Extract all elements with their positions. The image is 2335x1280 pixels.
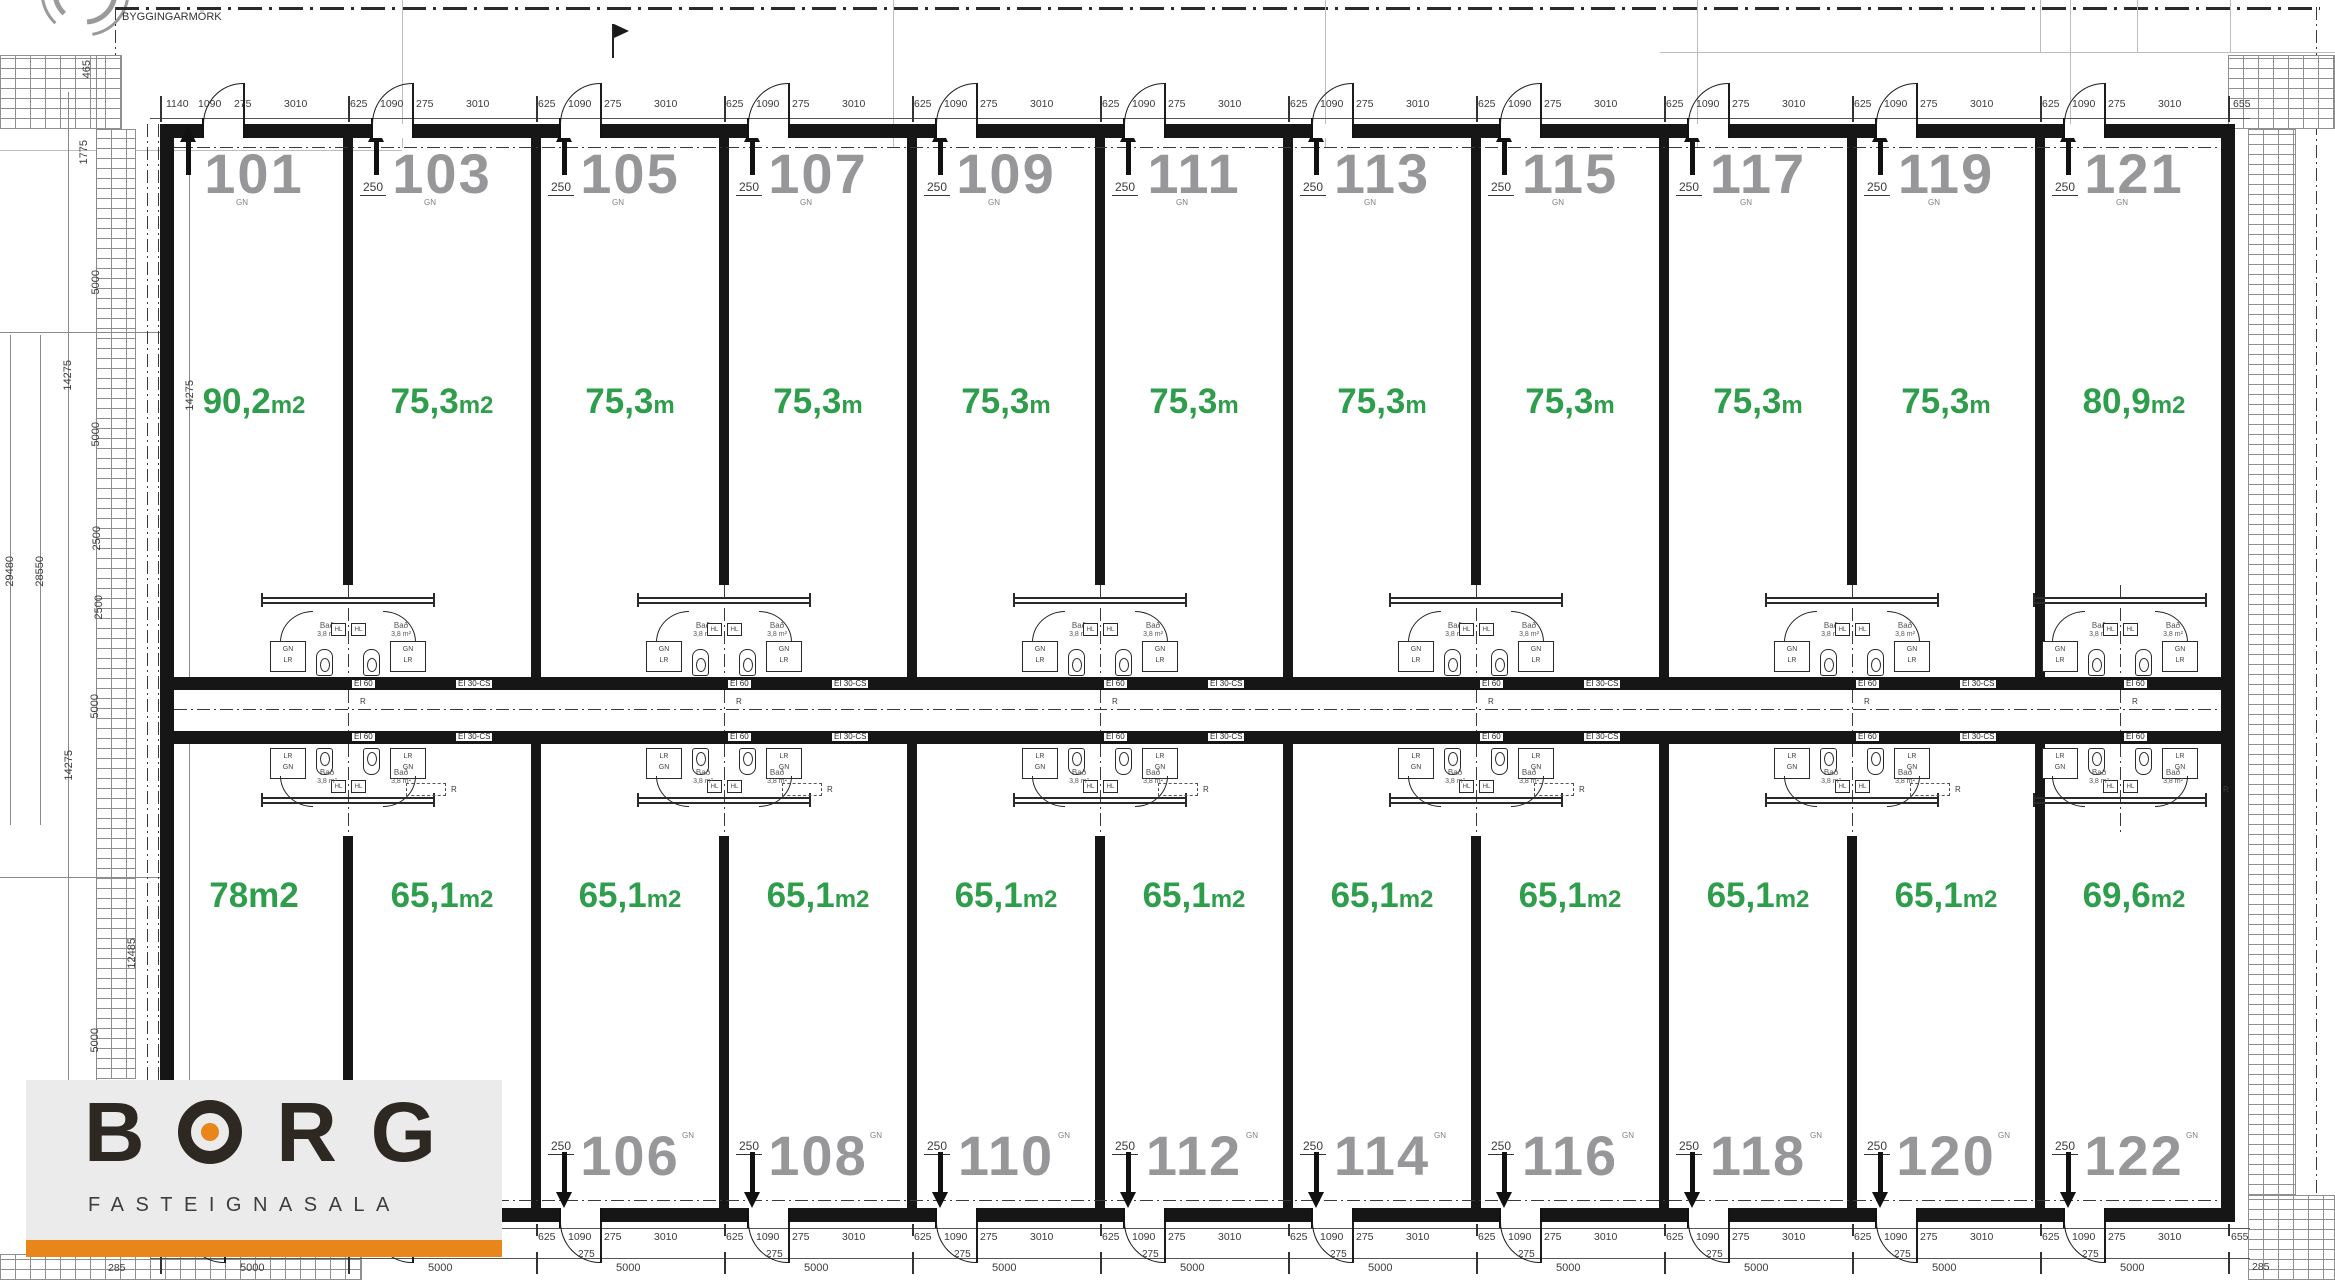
r-label: R (1112, 698, 1118, 706)
door-dim-label: 275 (1518, 1250, 1535, 1260)
bath-name: Bað (688, 768, 718, 778)
unit-gn-label: GN (1622, 1132, 1634, 1140)
dim-label: 275 (980, 99, 998, 110)
dim-label: 625 (1102, 99, 1120, 110)
toilet-bowl (2092, 752, 2102, 766)
insulation-line (147, 124, 148, 1222)
fixture-box: HL (331, 623, 346, 636)
closet-label: LR (1023, 752, 1057, 763)
door-leaf (412, 83, 414, 124)
closet-box: LRGN (646, 748, 682, 779)
r-label: R (736, 698, 742, 706)
building-wall-left (160, 124, 174, 1222)
closet-label: LR (1399, 656, 1433, 667)
unit-number: 101 (186, 146, 322, 202)
dim-label: 275 (980, 1232, 998, 1243)
corridor-floor (174, 690, 2221, 731)
unit-width-dim: 5000 (1932, 1263, 1956, 1274)
dim-label: 3010 (1218, 99, 1241, 110)
dim-label: 625 (1854, 1232, 1872, 1243)
dim-label: 3010 (1970, 1232, 1993, 1243)
closet-label: LR (1519, 752, 1553, 763)
door-swing-arc (748, 83, 788, 124)
unit-area-unit: m2 (647, 886, 682, 913)
unit-gn-label: GN (1058, 1132, 1070, 1140)
door-dim-label: 275 (578, 1250, 595, 1260)
door-leaf (1728, 1222, 1730, 1263)
wall-thickness-dim: 250 (1112, 181, 1138, 196)
wardrobe-rail (1767, 597, 1937, 604)
door-leaf (600, 83, 602, 124)
closet-label: LR (767, 656, 801, 667)
wardrobe-rail (1391, 797, 1561, 804)
pod-boundary-line (348, 744, 349, 836)
unit-area-value: 65,1 (391, 876, 459, 915)
unit-area-value: 69,6 (2083, 876, 2151, 915)
door-swing-arc (1500, 83, 1540, 124)
r-label: R (2132, 698, 2138, 706)
door-opening (1500, 124, 1541, 138)
unit-area: 75,3m2 (356, 384, 528, 419)
unit-area-value: 75,3 (585, 382, 653, 421)
grid-line-horizontal (1660, 52, 2335, 53)
toilet-bowl (1824, 752, 1834, 766)
toilet-bowl (320, 658, 330, 672)
closet-box: LRGN (1398, 748, 1434, 779)
unit-area-unit: m (1781, 392, 1802, 419)
unit-area-unit: m2 (835, 886, 870, 913)
door-opening (1876, 1208, 1917, 1222)
closet-box: GNLR (1142, 641, 1178, 672)
fixture-box: HL (727, 623, 742, 636)
unit-number: 117 (1690, 146, 1826, 202)
closet-label: GN (2043, 645, 2077, 656)
pod-boundary-line (2120, 744, 2121, 836)
unit-area: 65,1m2 (1484, 878, 1656, 913)
unit-area-unit: m2 (1963, 886, 1998, 913)
closet-label: GN (2163, 645, 2197, 656)
dim-label: 275 (2108, 99, 2126, 110)
closet-label: GN (2043, 763, 2077, 774)
unit-area: 65,1m2 (356, 878, 528, 913)
closet-box: LRGN (1774, 748, 1810, 779)
unit-area: 75,3m (1296, 384, 1468, 419)
r-label: R (1579, 786, 1585, 794)
fire-rating-label: EI 60 (352, 680, 375, 688)
door-opening (372, 124, 413, 138)
door-opening (1500, 1208, 1541, 1222)
unit-area: 90,2m2 (168, 384, 340, 419)
dim-label: 625 (726, 1232, 744, 1243)
fire-rating-label: EI 60 (1480, 733, 1503, 741)
dim-tick (724, 1252, 726, 1274)
closet-box: LRGN (270, 748, 306, 779)
closet-box: GNLR (1894, 641, 1930, 672)
door-swing-arc (280, 611, 313, 642)
toilet-icon (1867, 649, 1884, 676)
closet-label: LR (391, 656, 425, 667)
toilet-icon (739, 649, 756, 676)
unit-area-unit: m2 (271, 392, 306, 419)
toilet-bowl (1871, 658, 1881, 672)
entry-arrow-bar (1690, 141, 1695, 175)
dim-label: 3010 (1970, 99, 1993, 110)
entry-arrow-bar (1878, 141, 1883, 175)
closet-box: GNLR (1398, 641, 1434, 672)
rail-tick (2205, 793, 2207, 807)
door-leaf (1540, 1222, 1542, 1263)
toilet-bowl (696, 752, 706, 766)
fixture-box: HL (2103, 623, 2118, 636)
unit-width-dim: 5000 (428, 1263, 452, 1274)
entry-arrow-bar (562, 141, 567, 175)
fixture-box: HL (351, 780, 366, 793)
unit-area: 78m2 (168, 878, 340, 913)
dim-label: 275 (792, 99, 810, 110)
dim-label: 625 (914, 99, 932, 110)
unit-area-unit: m2 (1587, 886, 1622, 913)
closet-label: LR (1519, 656, 1553, 667)
wall-thickness-dim: 250 (736, 181, 762, 196)
bath-name: Bað (1514, 621, 1544, 631)
unit-number: 120 (1878, 1128, 2014, 1184)
dim-tick (1288, 1252, 1290, 1274)
grid-line-vertical (2040, 0, 2041, 52)
bath-area: 3,8 m² (1440, 778, 1470, 787)
toilet-icon (1491, 748, 1508, 775)
door-opening (1124, 124, 1165, 138)
closet-label: GN (1519, 645, 1553, 656)
left-margin-dim: 28550 (35, 556, 46, 587)
fire-rating-label: EI 60 (2124, 680, 2147, 688)
dim-label: 275 (792, 1232, 810, 1243)
rail-tick (1389, 593, 1391, 607)
unit-area: 75,3m (732, 384, 904, 419)
door-swing-arc (372, 83, 412, 124)
door-opening (560, 124, 601, 138)
door-leaf (1540, 83, 1542, 124)
entry-arrow-bar (1502, 1152, 1507, 1192)
unit-number: 118 (1690, 1128, 1826, 1184)
wardrobe-rail (2035, 797, 2205, 804)
door-leaf (1164, 1222, 1166, 1263)
bath-name: Bað (2158, 621, 2188, 631)
closet-label: LR (2163, 752, 2197, 763)
toilet-icon (1444, 649, 1461, 676)
rail-tick (637, 793, 639, 807)
dim-label: 3010 (466, 99, 489, 110)
fire-rating-label: EI 60 (1856, 680, 1879, 688)
bath-label: Bað3,8 m² (2158, 621, 2188, 640)
unit-width-dim: 5000 (1180, 1263, 1204, 1274)
unit-area-value: 80,9 (2083, 382, 2151, 421)
dim-tick (2040, 1252, 2042, 1274)
wall-thickness-dim: 250 (1300, 181, 1326, 196)
bath-area: 3,8 m² (386, 631, 416, 640)
dim-label: 275 (2108, 1232, 2126, 1243)
dim-label: 1140 (166, 99, 189, 110)
unit-area: 65,1m2 (1108, 878, 1280, 913)
borg-logo-accent-bar (26, 1240, 502, 1257)
unit-number: 116 (1502, 1128, 1638, 1184)
left-margin-dim: 2500 (94, 595, 105, 619)
entry-arrow-bar (1878, 1152, 1883, 1192)
unit-number: 115 (1502, 146, 1638, 202)
dim-label: 3010 (842, 99, 865, 110)
fire-rating-label: EI 60 (1104, 680, 1127, 688)
door-swing-arc (560, 83, 600, 124)
toilet-bowl (367, 752, 377, 766)
unit-area-value: 65,1 (767, 876, 835, 915)
dim-label: 1090 (2072, 1232, 2095, 1243)
fire-rating-label: EI 30-CS (1208, 733, 1244, 741)
unit-area-value: 78 (209, 876, 248, 915)
fixture-box: HL (1083, 623, 1098, 636)
fixture-box: HL (1459, 623, 1474, 636)
dim-label: 625 (914, 1232, 932, 1243)
unit-number: 109 (938, 146, 1074, 202)
door-leaf (788, 83, 790, 124)
pod-boundary-line (1476, 690, 1477, 731)
unit-gn-label: GN (1740, 199, 1752, 207)
closet-label: LR (1775, 656, 1809, 667)
closet-box: GNLR (1774, 641, 1810, 672)
unit-area: 75,3m (920, 384, 1092, 419)
door-swing-arc (203, 83, 243, 124)
boundary-line-right (2316, 7, 2317, 1280)
unit-area: 65,1m2 (920, 878, 1092, 913)
grid-line-vertical (2137, 0, 2138, 52)
closet-label: LR (2043, 656, 2077, 667)
left-margin-dim: 5000 (90, 1028, 101, 1052)
future-closet-dashed (1534, 783, 1574, 796)
toilet-icon (739, 748, 756, 775)
dim-label: 1090 (1884, 1232, 1907, 1243)
rail-tick (2033, 793, 2035, 807)
dim-chain-line (150, 1258, 2250, 1259)
wardrobe-rail (1015, 797, 1185, 804)
dim-label: 275 (604, 99, 622, 110)
left-margin-dim: 12485 (127, 938, 138, 969)
closet-label: LR (1399, 752, 1433, 763)
entry-arrow-head (1872, 1192, 1888, 1208)
door-dim-label: 275 (1330, 1250, 1347, 1260)
door-dim-label: 275 (1706, 1250, 1723, 1260)
unit-number: 121 (2066, 146, 2202, 202)
pod-boundary-line (1100, 690, 1101, 731)
fire-rating-label: EI 60 (728, 733, 751, 741)
unit-number: 105 (562, 146, 698, 202)
fire-rating-label: EI 30-CS (456, 733, 492, 741)
unit-number: 107 (750, 146, 886, 202)
unit-gn-label: GN (988, 199, 1000, 207)
unit-number: 108 (750, 1128, 886, 1184)
door-swing-arc (1312, 83, 1352, 124)
wardrobe-rail (263, 797, 433, 804)
unit-number: 114 (1314, 1128, 1450, 1184)
fire-rating-label: EI 30-CS (1960, 733, 1996, 741)
r-label: R (1864, 698, 1870, 706)
closet-label: GN (1023, 645, 1057, 656)
boundary-label: BYGGINGARMÖRK (122, 12, 222, 23)
pod-boundary-line (1100, 744, 1101, 836)
closet-label: LR (1143, 656, 1177, 667)
unit-gn-label: GN (2186, 1132, 2198, 1140)
door-leaf (600, 1222, 602, 1263)
closet-label: GN (271, 645, 305, 656)
fixture-box: HL (1835, 623, 1850, 636)
door-swing-arc (1876, 83, 1916, 124)
closet-box: GNLR (646, 641, 682, 672)
dim-label: 275 (1356, 1232, 1374, 1243)
unit-area-value: 65,1 (1143, 876, 1211, 915)
unit-gn-label: GN (1364, 199, 1376, 207)
fixture-box: HL (1479, 623, 1494, 636)
toilet-bowl (1448, 752, 1458, 766)
pod-boundary-line (1852, 744, 1853, 836)
rail-tick (2205, 593, 2207, 607)
grid-line-vertical (2230, 0, 2231, 52)
closet-box: LRGN (2042, 748, 2078, 779)
toilet-bowl (1871, 752, 1881, 766)
toilet-icon (2135, 649, 2152, 676)
r-label: R (2223, 786, 2229, 794)
unit-area-unit: m2 (1211, 886, 1246, 913)
bath-label: Bað3,8 m² (1138, 621, 1168, 640)
bath-label: Bað3,8 m² (312, 768, 342, 787)
pod-boundary-line (2120, 690, 2121, 731)
door-opening (2064, 1208, 2105, 1222)
left-margin-dim: 5000 (90, 694, 101, 718)
dim-label: 625 (1854, 99, 1872, 110)
fire-rating-label: EI 30-CS (1584, 680, 1620, 688)
fire-rating-label: EI 60 (1104, 733, 1127, 741)
wall-thickness-dim: 250 (1488, 181, 1514, 196)
rail-tick (809, 593, 811, 607)
closet-label: LR (1143, 752, 1177, 763)
door-dim-label: 275 (1142, 1250, 1159, 1260)
r-label: R (827, 786, 833, 794)
fixture-box: HL (2123, 623, 2138, 636)
unit-area: 75,3m (1860, 384, 2032, 419)
bath-label: Bað3,8 m² (1514, 621, 1544, 640)
wardrobe-rail (639, 797, 809, 804)
closet-label: GN (1775, 645, 1809, 656)
door-leaf (2104, 83, 2106, 124)
dim-tick (2228, 1252, 2230, 1274)
door-opening (936, 1208, 977, 1222)
dim-chain-line (150, 118, 2250, 119)
fixture-box: HL (1103, 623, 1118, 636)
dim-label: 1090 (1320, 1232, 1343, 1243)
bath-name: Bað (1064, 768, 1094, 778)
dim-label: 625 (1666, 1232, 1684, 1243)
toilet-icon (1491, 649, 1508, 676)
unit-area-unit: m (1217, 392, 1238, 419)
door-dim-label: 275 (1894, 1250, 1911, 1260)
bath-area: 3,8 m² (1514, 631, 1544, 640)
door-swing-arc (1784, 611, 1817, 642)
wardrobe-rail (263, 597, 433, 604)
dim-label: 275 (604, 1232, 622, 1243)
left-margin-dim: 14275 (64, 750, 75, 781)
unit-width-dim: 5000 (992, 1263, 1016, 1274)
closet-label: GN (271, 763, 305, 774)
r-label: R (1203, 786, 1209, 794)
door-swing-arc (936, 83, 976, 124)
building-wall-top (160, 124, 2235, 138)
closet-label: LR (1775, 752, 1809, 763)
dim-label: 1090 (756, 1232, 779, 1243)
dim-line (68, 92, 69, 1212)
entry-arrow-bar (1502, 141, 1507, 175)
entry-arrow-head (1684, 1192, 1700, 1208)
rail-tick (1937, 593, 1939, 607)
dim-label: 625 (1666, 99, 1684, 110)
unit-number: 119 (1878, 146, 2014, 202)
bath-label: Bað3,8 m² (762, 621, 792, 640)
unit-number: 122 (2066, 1128, 2202, 1184)
dim-label: 3010 (1030, 1232, 1053, 1243)
logo-orange-dot (201, 1123, 219, 1141)
future-closet-dashed (782, 783, 822, 796)
closet-box: GNLR (390, 641, 426, 672)
closet-label: LR (391, 752, 425, 763)
dim-label: 3010 (654, 99, 677, 110)
dim-label: 625 (1290, 99, 1308, 110)
entry-arrow-bar (938, 1152, 943, 1192)
r-label: R (451, 786, 457, 794)
left-margin-dim: 5000 (91, 422, 102, 446)
bath-area: 3,8 m² (1138, 631, 1168, 640)
unit-width-dim: 5000 (1556, 1263, 1580, 1274)
dim-line (0, 332, 162, 333)
fire-rating-label: EI 30-CS (832, 680, 868, 688)
dim-label: 275 (1732, 99, 1750, 110)
unit-gn-label: GN (1998, 1132, 2010, 1140)
dim-label: 625 (1478, 99, 1496, 110)
toilet-bowl (1495, 658, 1505, 672)
fire-rating-label: EI 30-CS (1960, 680, 1996, 688)
entry-arrow-head (2060, 1192, 2076, 1208)
closet-label: GN (391, 645, 425, 656)
unit-area-value: 75,3 (1525, 382, 1593, 421)
dim-label: 275 (1168, 99, 1186, 110)
entry-arrow-bar (2066, 1152, 2071, 1192)
dim-label: 275 (1920, 99, 1938, 110)
fire-rating-label: EI 30-CS (456, 680, 492, 688)
fixture-box: HL (1479, 780, 1494, 793)
door-opening (748, 1208, 789, 1222)
dim-label: 3010 (1030, 99, 1053, 110)
toilet-icon (1867, 748, 1884, 775)
toilet-icon (1068, 649, 1085, 676)
closet-label: LR (2043, 752, 2077, 763)
logo-letter: R (276, 1090, 337, 1174)
dim-label: 275 (1544, 1232, 1562, 1243)
unit-width-dim: 5000 (1744, 1263, 1768, 1274)
unit-gn-label: GN (236, 199, 248, 207)
unit-number: 103 (374, 146, 510, 202)
unit-area-value: 75,3 (1149, 382, 1217, 421)
unit-width-dim: 5000 (804, 1263, 828, 1274)
fire-rating-label: EI 60 (2124, 733, 2147, 741)
unit-area-unit: m (841, 392, 862, 419)
door-dim-label: 275 (2082, 1250, 2099, 1260)
unit-area-value: 65,1 (1895, 876, 1963, 915)
toilet-bowl (1072, 752, 1082, 766)
pod-boundary-line (1476, 744, 1477, 836)
